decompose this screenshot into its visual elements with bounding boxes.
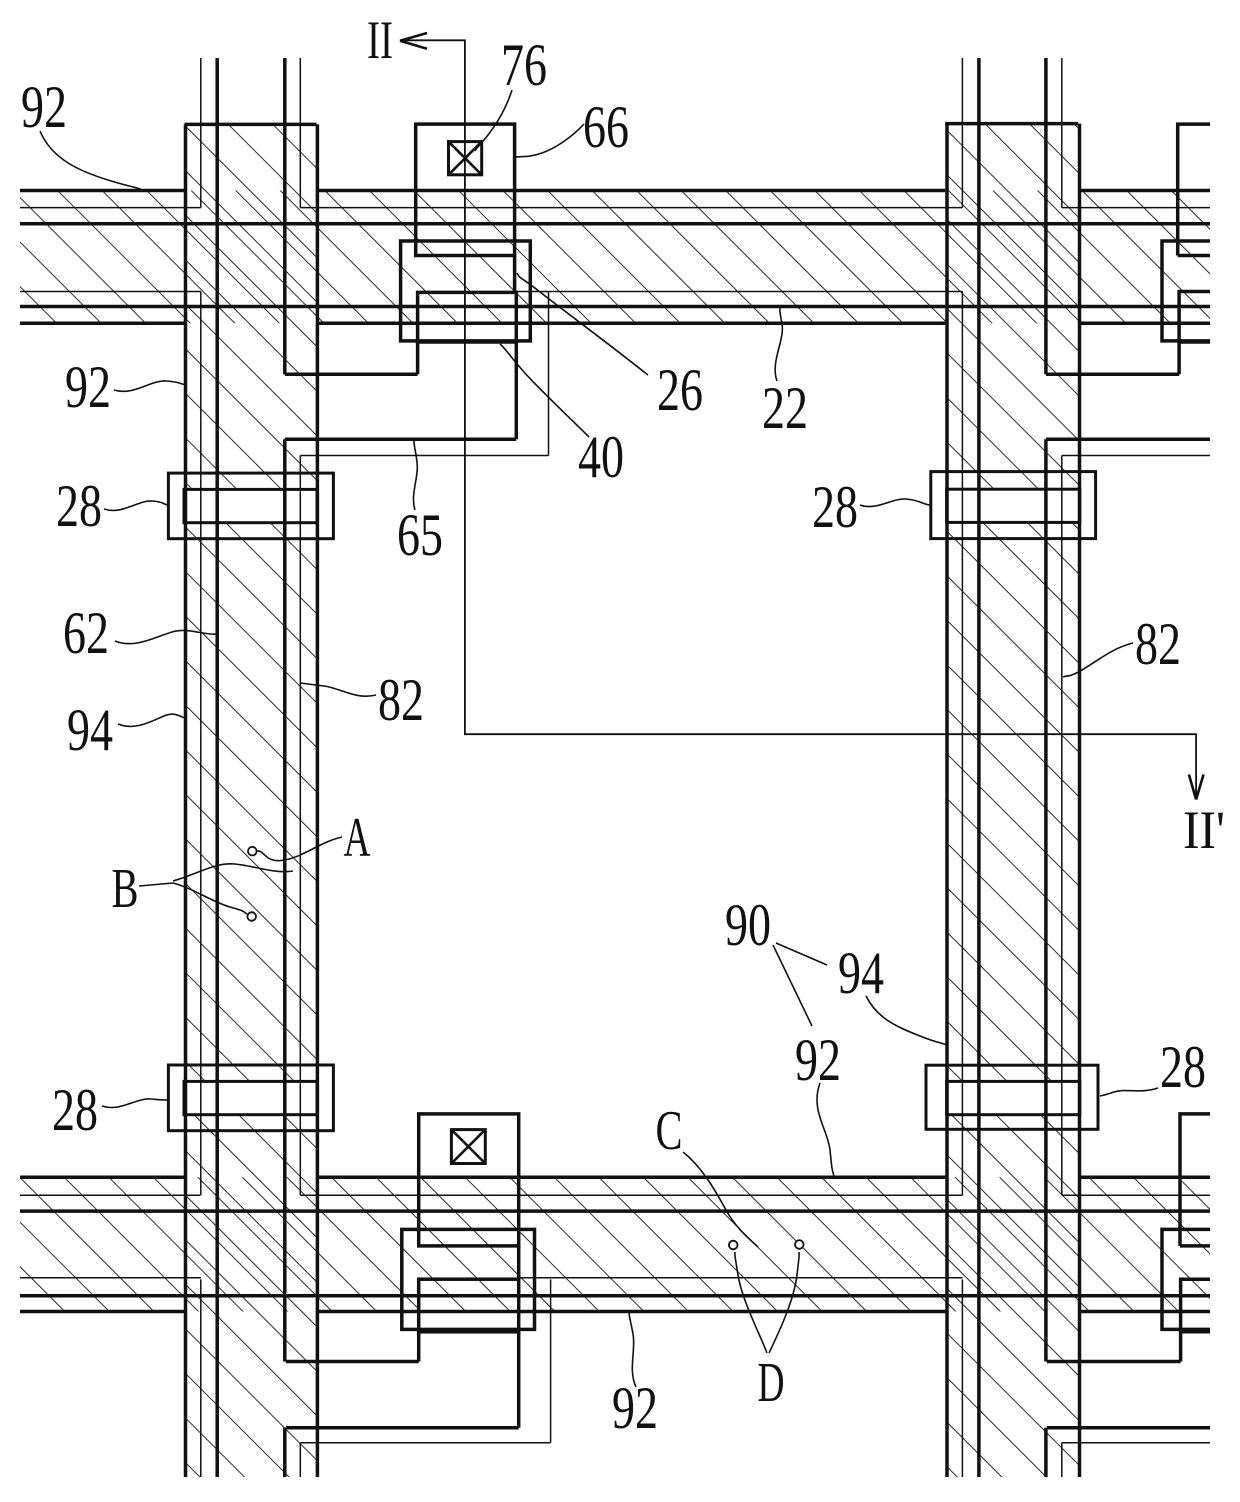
- svg-text:A: A: [344, 807, 371, 869]
- svg-text:90: 90: [725, 892, 771, 958]
- svg-text:92: 92: [795, 1027, 841, 1093]
- svg-text:D: D: [758, 1352, 785, 1414]
- svg-text:92: 92: [65, 354, 111, 420]
- svg-text:94: 94: [838, 940, 884, 1006]
- svg-text:C: C: [656, 1100, 683, 1162]
- svg-text:28: 28: [1160, 1034, 1206, 1100]
- svg-text:66: 66: [583, 94, 629, 160]
- svg-text:22: 22: [762, 375, 808, 441]
- svg-text:82: 82: [378, 667, 424, 733]
- svg-text:76: 76: [501, 32, 547, 98]
- svg-text:28: 28: [52, 1077, 98, 1143]
- svg-text:II': II': [1183, 800, 1225, 860]
- svg-text:65: 65: [397, 502, 443, 568]
- svg-text:B: B: [112, 858, 139, 920]
- svg-text:62: 62: [63, 600, 109, 666]
- svg-text:92: 92: [21, 74, 67, 140]
- svg-text:82: 82: [1135, 611, 1181, 677]
- svg-text:28: 28: [812, 474, 858, 540]
- svg-text:28: 28: [56, 473, 102, 539]
- svg-text:92: 92: [612, 1375, 658, 1441]
- svg-text:40: 40: [578, 424, 624, 490]
- svg-text:26: 26: [657, 357, 703, 423]
- svg-text:II: II: [367, 10, 393, 70]
- svg-text:94: 94: [67, 697, 113, 763]
